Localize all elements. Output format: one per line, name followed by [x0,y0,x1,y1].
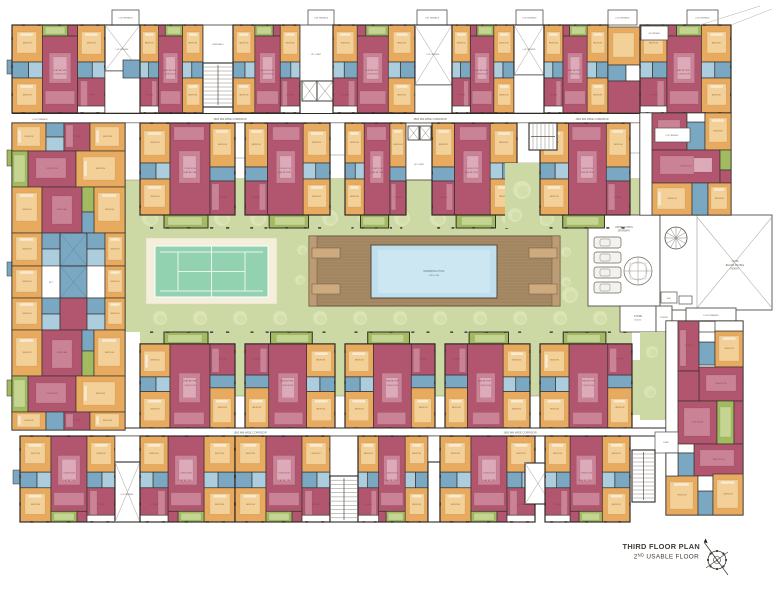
svg-text:KITCHEN: KITCHEN [394,197,402,199]
svg-text:POWDER: POWDER [660,317,669,319]
svg-text:FLAT 3B TYPE: FLAT 3B TYPE [371,171,384,174]
svg-text:BEDROOM: BEDROOM [451,504,460,506]
svg-text:FLAT 3B TYPE: FLAT 3B TYPE [581,171,594,174]
svg-text:BEDROOM: BEDROOM [725,348,734,350]
svg-text:BEDROOM: BEDROOM [364,453,373,455]
svg-text:BEDROOM: BEDROOM [419,407,428,409]
svg-text:LIVING ROOM: LIVING ROOM [386,473,398,475]
svg-text:LIFT LOBBY: LIFT LOBBY [311,54,322,56]
svg-text:LIVING ROOM: LIVING ROOM [371,168,383,170]
svg-text:1800 MM WIDE CORRIDOR: 1800 MM WIDE CORRIDOR [413,117,446,121]
svg-text:KITCHEN: KITCHEN [252,197,260,199]
svg-text:KITCHEN: KITCHEN [146,95,154,97]
svg-text:DINING ROOM: DINING ROOM [715,383,727,385]
svg-text:1800 MM WIDE CORRIDOR: 1800 MM WIDE CORRIDOR [503,431,536,435]
svg-text:LIVING ROOM: LIVING ROOM [692,422,704,424]
svg-text:BEDROOM: BEDROOM [312,142,321,144]
svg-text:BEDROOM: BEDROOM [252,407,261,409]
svg-text:BEDROOM: BEDROOM [355,359,364,361]
svg-text:BEDROOM: BEDROOM [451,453,460,455]
svg-text:THIRD FLOOR PLAN: THIRD FLOOR PLAN [623,542,700,551]
svg-text:BEDROOM: BEDROOM [151,142,160,144]
svg-text:BEDROOM: BEDROOM [23,313,32,315]
svg-text:BEDROOM: BEDROOM [500,43,509,45]
svg-text:BEDROOM: BEDROOM [188,95,197,97]
svg-text:BEDROOM: BEDROOM [23,281,32,283]
svg-text:LOB TERRACE: LOB TERRACE [666,134,679,137]
svg-text:LIVING ROOM: LIVING ROOM [46,393,58,395]
svg-text:LIVING ROOM: LIVING ROOM [582,168,594,170]
svg-text:FLAT 3B TYPE: FLAT 3B TYPE [579,479,592,482]
svg-text:LOB TERRACE: LOB TERRACE [32,118,48,121]
svg-text:BEDROOM: BEDROOM [439,144,448,146]
svg-text:FLAT 3B TYPE: FLAT 3B TYPE [280,379,293,382]
svg-text:BEDROOM: BEDROOM [614,144,623,146]
svg-text:LOB TERRACE: LOB TERRACE [116,48,129,51]
svg-text:BEDROOM: BEDROOM [712,95,721,97]
svg-text:KITCHEN: KITCHEN [650,95,658,97]
svg-text:FLAT 3B TYPE: FLAT 3B TYPE [184,171,197,174]
svg-text:BEDROOM: BEDROOM [452,407,461,409]
svg-text:BEDROOM: BEDROOM [612,504,621,506]
svg-text:LIVING ROOM: LIVING ROOM [569,74,581,76]
svg-text:FLAT 3B TYPE: FLAT 3B TYPE [179,479,192,482]
svg-text:BEDROOM: BEDROOM [355,409,364,411]
svg-text:BEDROOM: BEDROOM [553,453,562,455]
svg-text:KITCHEN: KITCHEN [341,95,349,97]
svg-text:BEDROOM: BEDROOM [23,95,32,97]
svg-text:BEDROOM: BEDROOM [715,198,724,200]
svg-text:BEDROOM: BEDROOM [218,407,227,409]
svg-text:BEDROOM: BEDROOM [87,43,96,45]
svg-text:BEDROOM: BEDROOM [111,313,120,315]
svg-text:FLAT 3B TYPE: FLAT 3B TYPE [483,479,496,482]
svg-text:1800 MM WIDE CORRIDOR: 1800 MM WIDE CORRIDOR [575,117,608,121]
svg-text:LIVING ROOM: LIVING ROOM [467,168,479,170]
svg-text:FLAT 3B TYPE: FLAT 3B TYPE [582,379,595,382]
svg-text:FLAT 3B TYPE: FLAT 3B TYPE [54,69,67,72]
svg-text:BEDROOM: BEDROOM [215,453,224,455]
svg-text:BEDROOM: BEDROOM [151,409,160,411]
svg-text:BEDROOM: BEDROOM [312,196,321,198]
svg-text:BEDROOM: BEDROOM [103,420,112,422]
svg-text:GYM: GYM [732,259,739,263]
svg-text:LIVING ROOM: LIVING ROOM [480,385,492,387]
svg-text:BEDROOM: BEDROOM [23,43,32,45]
svg-text:BEDROOM: BEDROOM [549,43,558,45]
svg-text:BEDROOM: BEDROOM [286,43,295,45]
svg-text:LIVING ROOM: LIVING ROOM [367,74,379,76]
svg-text:FLAT 3B TYPE: FLAT 3B TYPE [475,69,488,72]
svg-text:LIVING ROOM: LIVING ROOM [678,74,690,76]
svg-text:FLAT 3B TYPE: FLAT 3B TYPE [385,479,398,482]
svg-text:BEDROOM: BEDROOM [593,95,602,97]
svg-text:LIVING ROOM: LIVING ROOM [583,385,595,387]
svg-text:FLAT 3B TYPE: FLAT 3B TYPE [184,379,197,382]
svg-text:KITCHEN: KITCHEN [253,358,261,360]
svg-text:BEDROOM: BEDROOM [97,453,106,455]
svg-text:1800 MM WIDE CORRIDOR: 1800 MM WIDE CORRIDOR [233,431,266,435]
svg-text:BEDROOM: BEDROOM [412,504,421,506]
svg-text:HEIGHT: HEIGHT [731,269,740,271]
svg-text:BEDROOM: BEDROOM [31,504,40,506]
svg-text:KITCHEN: KITCHEN [73,420,81,422]
svg-text:BEDROOM: BEDROOM [500,95,509,97]
svg-text:BEDROOM: BEDROOM [550,359,559,361]
svg-text:BEDROOM: BEDROOM [668,198,677,200]
svg-text:BEDROOM: BEDROOM [457,43,466,45]
svg-text:BEDROOM: BEDROOM [724,494,733,496]
svg-text:BEDROOM: BEDROOM [23,352,32,354]
svg-text:BEDROOM: BEDROOM [394,144,403,146]
svg-text:BEDROOM: BEDROOM [151,196,160,198]
svg-text:KITCHEN: KITCHEN [365,504,373,506]
svg-text:KITCHEN: KITCHEN [286,95,294,97]
svg-text:KITCHEN: KITCHEN [614,197,622,199]
svg-text:BEDROOM: BEDROOM [150,453,159,455]
svg-text:LIVING ROOM: LIVING ROOM [483,473,495,475]
svg-text:BEDROOM: BEDROOM [96,168,105,170]
svg-text:BEDROOM: BEDROOM [350,196,359,198]
svg-text:KITCHEN: KITCHEN [73,136,81,138]
svg-text:LIVING ROOM: LIVING ROOM [387,385,399,387]
svg-text:LOB TERRACE: LOB TERRACE [118,17,133,20]
svg-text:LOB TERRACE: LOB TERRACE [425,17,440,20]
svg-text:FLAT 3B TYPE: FLAT 3B TYPE [386,379,399,382]
svg-text:LIVING ROOM: LIVING ROOM [581,473,593,475]
svg-text:FLAT 3B TYPE: FLAT 3B TYPE [261,69,274,72]
svg-text:STORE: STORE [634,315,643,318]
svg-text:BEDROOM: BEDROOM [246,453,255,455]
svg-text:LOB TERRACE: LOB TERRACE [427,53,440,56]
svg-text:BEDROOM: BEDROOM [616,407,625,409]
svg-text:LIVING ROOM: LIVING ROOM [46,168,58,170]
svg-text:FLAT 3B TYPE: FLAT 3B TYPE [163,69,176,72]
svg-text:LOB TERRACE: LOB TERRACE [615,17,630,20]
svg-text:FAMILY ROOM: FAMILY ROOM [713,458,725,461]
svg-text:LOB TERRACE: LOB TERRACE [522,17,537,20]
svg-text:FLAT 3B TYPE: FLAT 3B TYPE [278,479,291,482]
svg-text:KITCHEN: KITCHEN [517,504,525,506]
svg-text:BEDROOM: BEDROOM [714,131,723,133]
svg-text:BEDROOM: BEDROOM [103,136,112,138]
svg-text:SWIMMING POOL: SWIMMING POOL [423,269,445,273]
svg-text:BEDROOM: BEDROOM [111,249,120,251]
svg-text:BEDROOM: BEDROOM [678,495,687,497]
svg-text:LIVING ROOM: LIVING ROOM [184,385,196,387]
svg-text:LIVING ROOM: LIVING ROOM [262,74,274,76]
svg-text:BEDROOM: BEDROOM [252,144,261,146]
svg-text:KITCHEN: KITCHEN [88,95,96,97]
svg-text:BEDROOM: BEDROOM [512,409,521,411]
svg-text:KITCHEN: KITCHEN [685,345,693,347]
svg-text:LIVING ROOM: LIVING ROOM [180,473,192,475]
svg-text:STAIRCASE 1: STAIRCASE 1 [212,43,224,46]
svg-text:BEDROOM: BEDROOM [341,43,350,45]
svg-text:KITCHEN: KITCHEN [452,358,460,360]
svg-text:KITCHEN: KITCHEN [457,95,465,97]
svg-text:LIVING ROOM: LIVING ROOM [184,168,196,170]
svg-text:BEDROOM: BEDROOM [499,142,508,144]
svg-text:BEDROOM: BEDROOM [23,209,32,211]
svg-text:FLAT 3B TYPE: FLAT 3B TYPE [63,479,76,482]
svg-text:30X12.5M: 30X12.5M [429,275,439,277]
svg-text:BEDROOM: BEDROOM [105,209,114,211]
svg-text:LIVING ROOM: LIVING ROOM [680,166,692,168]
svg-text:BEDROOM: BEDROOM [412,453,421,455]
svg-text:LIFT LOBBY: LIFT LOBBY [414,164,425,166]
svg-text:DINING HALL: DINING HALL [57,208,68,211]
svg-text:BEDROOM: BEDROOM [397,43,406,45]
svg-text:BEDROOM: BEDROOM [145,43,154,45]
svg-text:LIVING ROOM: LIVING ROOM [280,168,292,170]
svg-text:KITCHEN: KITCHEN [312,504,320,506]
svg-text:LIVING ROOM: LIVING ROOM [63,473,75,475]
svg-text:BEDROOM: BEDROOM [246,504,255,506]
svg-text:BEDROOM: BEDROOM [240,95,249,97]
svg-text:DINING HALL: DINING HALL [57,351,68,354]
svg-text:BEDROOM: BEDROOM [240,43,249,45]
svg-text:FLAT 3B TYPE: FLAT 3B TYPE [677,69,690,72]
svg-text:KITCHEN: KITCHEN [219,358,227,360]
svg-text:KITCHEN: KITCHEN [554,504,562,506]
svg-text:BEDROOM: BEDROOM [350,142,359,144]
svg-text:BEDROOM: BEDROOM [649,43,658,45]
svg-text:BEDROOM: BEDROOM [316,409,325,411]
svg-text:LOB TERRACE: LOB TERRACE [314,17,329,20]
svg-text:FLAT 3B TYPE: FLAT 3B TYPE [478,379,491,382]
svg-text:KITCHEN: KITCHEN [439,197,447,199]
svg-text:LIVING ROOM: LIVING ROOM [282,385,294,387]
svg-text:FLAT 3B TYPE: FLAT 3B TYPE [278,171,291,174]
svg-text:BEDROOM: BEDROOM [151,359,160,361]
svg-text:BELOW DOUBLE: BELOW DOUBLE [726,265,745,267]
svg-text:BEDROOM: BEDROOM [25,420,34,422]
svg-text:BEDROOM: BEDROOM [512,359,521,361]
svg-text:LOBBY: LOBBY [663,442,670,444]
svg-text:FLAT 3B TYPE: FLAT 3B TYPE [365,69,378,72]
svg-text:LIVING ROOM: LIVING ROOM [278,473,290,475]
svg-text:KITCHEN: KITCHEN [219,197,227,199]
svg-text:BEDROOM: BEDROOM [96,393,105,395]
svg-text:LOB TERRACE: LOB TERRACE [703,314,719,317]
svg-text:DRIVEWAY: DRIVEWAY [618,230,631,233]
svg-text:2ND USABLE FLOOR: 2ND USABLE FLOOR [634,553,699,561]
svg-text:FLAT 3B TYPE: FLAT 3B TYPE [465,171,478,174]
svg-text:FLAT 3B TYPE: FLAT 3B TYPE [568,69,581,72]
svg-text:BEDROOM: BEDROOM [312,453,321,455]
svg-text:BEDROOM: BEDROOM [593,43,602,45]
svg-text:LOB TERRACE: LOB TERRACE [648,32,661,35]
svg-text:LOB TERRACE: LOB TERRACE [695,17,710,20]
svg-text:1800 MM WIDE CORRIDOR: 1800 MM WIDE CORRIDOR [213,117,246,121]
svg-text:BEDROOM: BEDROOM [397,95,406,97]
svg-text:BEDROOM: BEDROOM [111,281,120,283]
svg-text:KITCHEN: KITCHEN [550,95,558,97]
svg-text:LOB TERRACE: LOB TERRACE [523,48,536,51]
svg-text:KITCHEN: KITCHEN [150,504,158,506]
svg-text:BEDROOM: BEDROOM [550,409,559,411]
svg-text:LOB TERRACE: LOB TERRACE [121,493,134,496]
svg-text:KITCHEN: KITCHEN [616,358,624,360]
svg-text:LIVING ROOM: LIVING ROOM [165,74,177,76]
svg-text:BEDROOM: BEDROOM [612,453,621,455]
svg-text:BEDROOM: BEDROOM [550,196,559,198]
svg-text:LIVING ROOM: LIVING ROOM [54,74,66,76]
svg-text:BEDROOM: BEDROOM [517,453,526,455]
svg-text:KITCHEN: KITCHEN [97,504,105,506]
svg-text:BEDROOM: BEDROOM [188,43,197,45]
svg-text:BEDROOM: BEDROOM [105,352,114,354]
svg-text:BEDROOM: BEDROOM [712,43,721,45]
svg-text:N: N [716,559,718,563]
svg-text:KITCHEN: KITCHEN [419,358,427,360]
svg-text:20'2x11': 20'2x11' [634,320,642,322]
svg-text:LIVING ROOM: LIVING ROOM [476,74,488,76]
svg-text:BEDROOM: BEDROOM [25,136,34,138]
svg-text:BEDROOM: BEDROOM [316,359,325,361]
svg-text:BEDROOM: BEDROOM [218,144,227,146]
svg-text:BEDROOM: BEDROOM [31,453,40,455]
svg-text:BEDROOM: BEDROOM [215,504,224,506]
svg-text:BEDROOM: BEDROOM [23,249,32,251]
